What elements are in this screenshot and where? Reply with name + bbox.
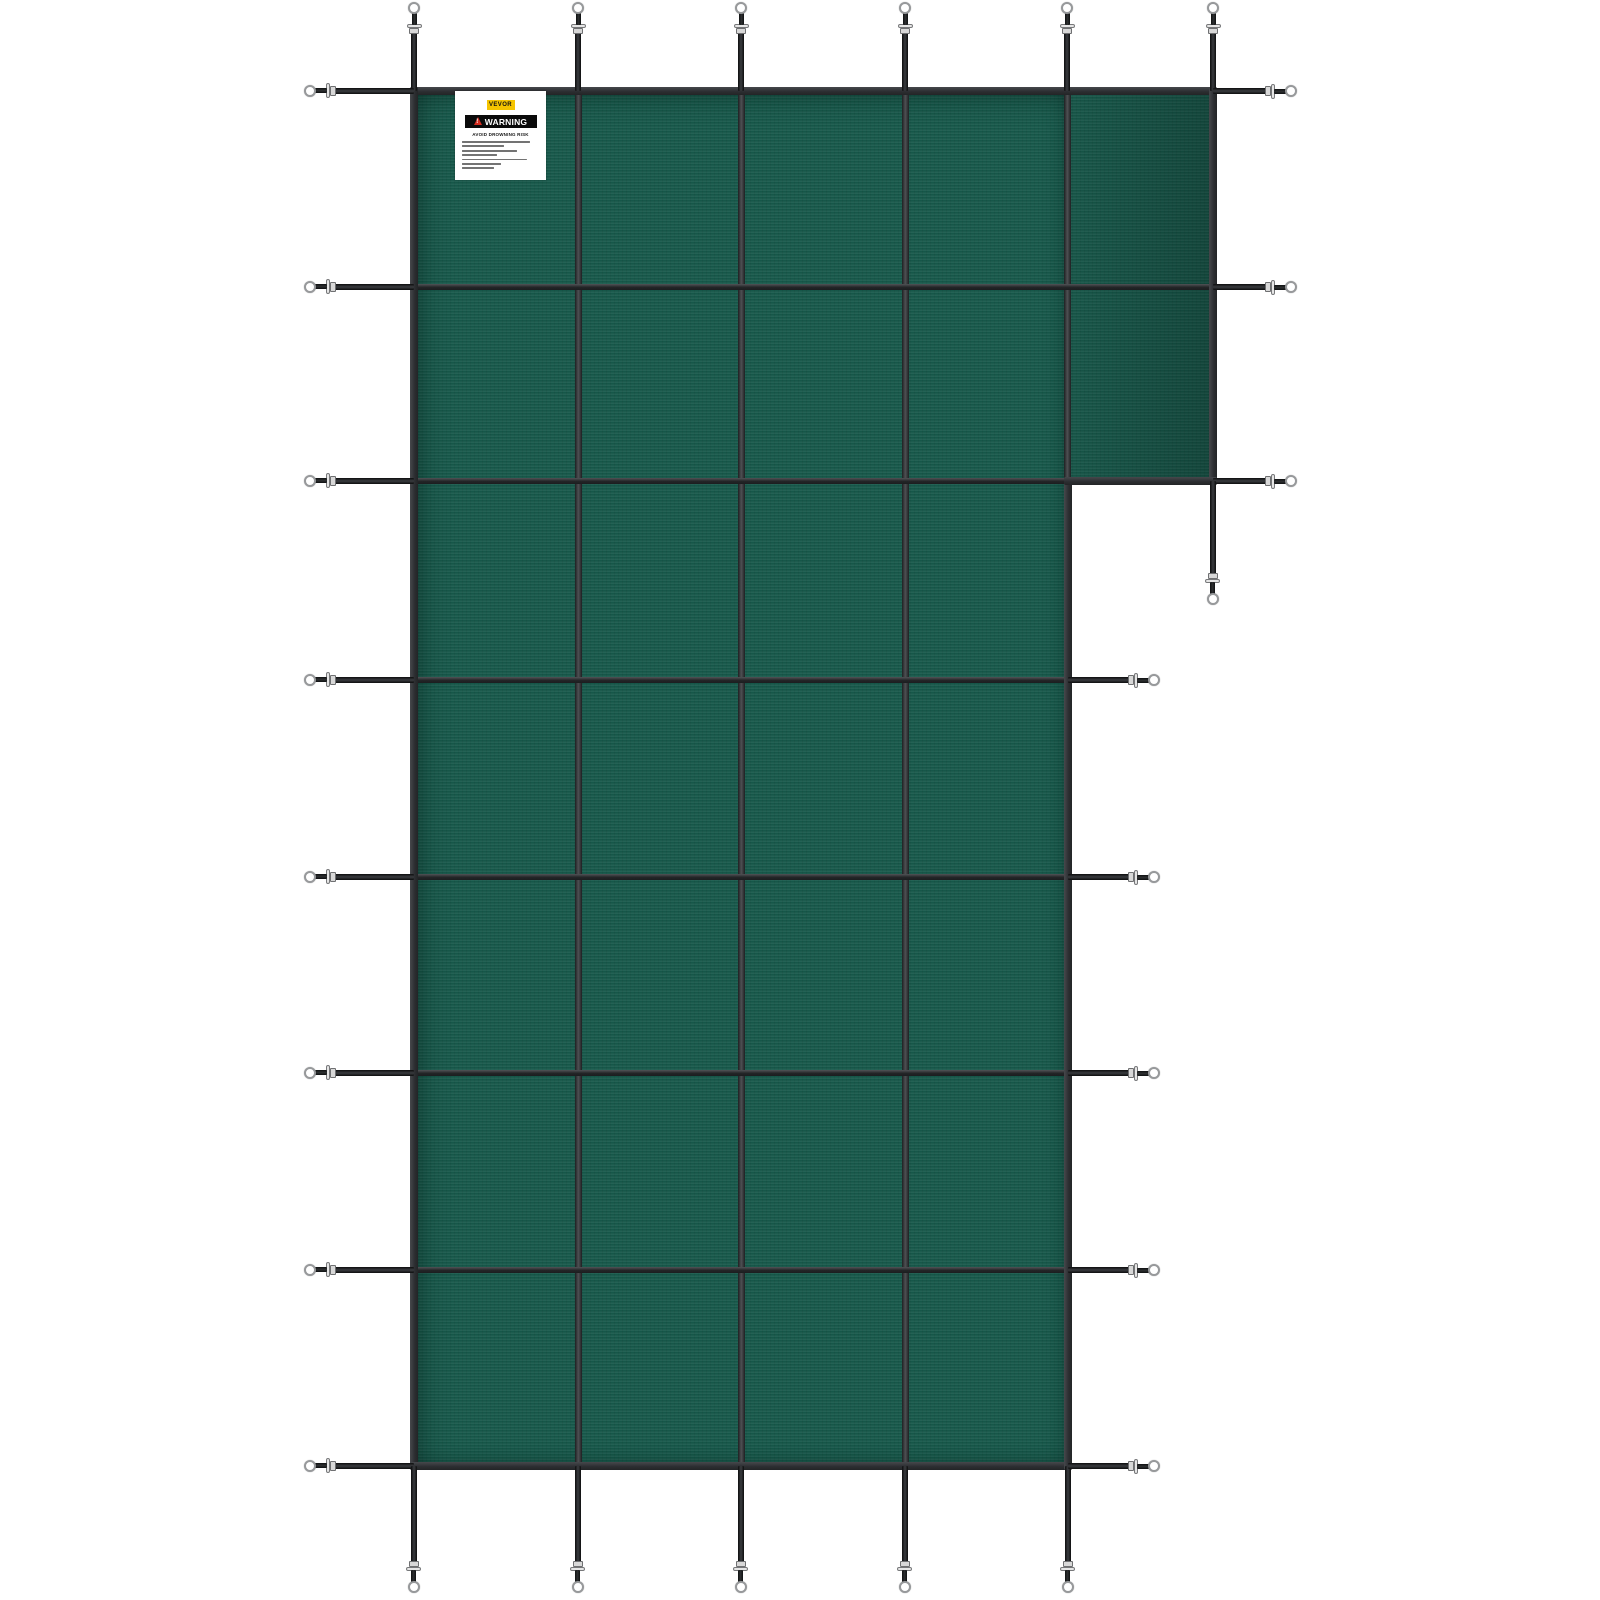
strap-webbing-tip — [1211, 13, 1216, 25]
strap-buckle — [573, 28, 583, 34]
strap-webbing-tip — [315, 285, 327, 290]
strap-webbing-tip — [576, 13, 581, 25]
strap-webbing-tip — [903, 13, 908, 25]
grid-strap-vertical — [575, 91, 582, 1466]
strap-webbing — [1213, 88, 1266, 94]
perimeter-strap — [1068, 1065, 1160, 1081]
strap-spring-ring — [305, 1067, 317, 1079]
strap-spring-ring — [305, 281, 317, 293]
perimeter-strap — [1213, 279, 1297, 295]
strap-spring-ring — [899, 1581, 911, 1593]
strap-buckle — [900, 28, 910, 34]
strap-buckle — [409, 28, 419, 34]
perimeter-strap — [1068, 1262, 1160, 1278]
strap-spring-ring — [305, 475, 317, 487]
strap-buckle — [330, 282, 336, 292]
strap-webbing — [1065, 1466, 1071, 1562]
strap-webbing — [1210, 481, 1216, 574]
warning-word: WARNING — [485, 117, 527, 127]
perimeter-strap — [897, 1466, 913, 1593]
strap-webbing — [1068, 677, 1129, 683]
perimeter-strap — [406, 2, 422, 91]
strap-spring-ring — [1148, 1264, 1160, 1276]
strap-webbing — [902, 33, 908, 91]
strap-webbing-tip — [315, 1071, 327, 1076]
perimeter-strap — [304, 83, 414, 99]
strap-spring-ring — [1148, 1460, 1160, 1472]
grid-strap-vertical — [738, 91, 745, 1466]
strap-spring-ring — [1148, 1067, 1160, 1079]
strap-buckle — [330, 86, 336, 96]
strap-buckle — [736, 28, 746, 34]
fine-print-line — [462, 167, 494, 169]
strap-buckle — [330, 1068, 336, 1078]
warning-headline: AVOID DROWNING RISK — [455, 132, 546, 137]
perimeter-strap — [1059, 2, 1075, 91]
strap-webbing-tip — [315, 1268, 327, 1273]
strap-spring-ring — [1207, 593, 1219, 605]
perimeter-strap — [570, 2, 586, 91]
perimeter-strap — [304, 672, 414, 688]
grid-strap-horizontal — [414, 1070, 1068, 1076]
perimeter-strap — [1068, 1458, 1160, 1474]
perimeter-strap — [304, 1065, 414, 1081]
strap-webbing — [738, 1466, 744, 1562]
strap-webbing — [335, 284, 414, 290]
strap-spring-ring — [735, 3, 747, 15]
strap-webbing — [411, 1466, 417, 1562]
warning-banner: WARNING — [465, 115, 537, 128]
strap-webbing — [902, 1466, 908, 1562]
strap-spring-ring — [572, 1581, 584, 1593]
fine-print-line — [462, 163, 501, 165]
fine-print-line — [462, 154, 497, 156]
perimeter-strap — [304, 473, 414, 489]
fine-print-line — [462, 150, 517, 152]
vevor-logo-badge: VEVOR — [487, 100, 515, 110]
strap-spring-ring — [572, 3, 584, 15]
strap-buckle — [1062, 28, 1072, 34]
perimeter-strap — [733, 1466, 749, 1593]
strap-buckle — [330, 675, 336, 685]
perimeter-strap — [1213, 83, 1297, 99]
strap-webbing — [335, 478, 414, 484]
warning-label: VEVOR WARNING AVOID DROWNING RISK — [455, 91, 546, 180]
warning-fine-print — [455, 141, 546, 169]
fine-print-line — [462, 141, 530, 143]
product-photo: VEVOR WARNING AVOID DROWNING RISK — [0, 0, 1600, 1600]
fine-print-line — [462, 145, 504, 147]
strap-webbing — [335, 874, 414, 880]
strap-webbing — [335, 1267, 414, 1273]
strap-webbing — [335, 1463, 414, 1469]
strap-webbing — [1064, 33, 1070, 91]
strap-webbing-tip — [315, 678, 327, 683]
strap-webbing — [1213, 284, 1266, 290]
grid-strap-horizontal — [414, 677, 1068, 683]
perimeter-strap — [733, 2, 749, 91]
strap-buckle — [1208, 28, 1218, 34]
strap-webbing — [738, 33, 744, 91]
strap-spring-ring — [899, 3, 911, 15]
strap-webbing — [335, 677, 414, 683]
strap-spring-ring — [408, 1581, 420, 1593]
perimeter-strap — [1205, 2, 1221, 91]
strap-webbing — [575, 1466, 581, 1562]
perimeter-strap — [1068, 869, 1160, 885]
strap-buckle — [330, 1265, 336, 1275]
strap-spring-ring — [1148, 871, 1160, 883]
strap-webbing-tip — [412, 13, 417, 25]
strap-spring-ring — [305, 871, 317, 883]
strap-buckle — [330, 476, 336, 486]
strap-buckle — [330, 1461, 336, 1471]
strap-spring-ring — [305, 1460, 317, 1472]
strap-spring-ring — [1207, 3, 1219, 15]
hazard-triangle-icon — [474, 117, 482, 125]
perimeter-strap — [570, 1466, 586, 1593]
strap-webbing — [1068, 1267, 1129, 1273]
strap-spring-ring — [1285, 475, 1297, 487]
strap-buckle — [330, 872, 336, 882]
grid-strap-horizontal — [414, 284, 1213, 290]
perimeter-strap — [304, 869, 414, 885]
strap-spring-ring — [408, 3, 420, 15]
grid-strap-horizontal — [414, 874, 1068, 880]
strap-spring-ring — [1285, 85, 1297, 97]
strap-spring-ring — [1148, 674, 1160, 686]
perimeter-strap — [406, 1466, 422, 1593]
strap-webbing — [1068, 1463, 1129, 1469]
strap-webbing — [335, 88, 414, 94]
strap-webbing-tip — [315, 89, 327, 94]
strap-spring-ring — [305, 85, 317, 97]
perimeter-strap — [1068, 672, 1160, 688]
strap-spring-ring — [735, 1581, 747, 1593]
strap-webbing-tip — [315, 1464, 327, 1469]
perimeter-strap — [1205, 481, 1221, 605]
strap-webbing-tip — [739, 13, 744, 25]
strap-spring-ring — [305, 674, 317, 686]
perimeter-strap — [304, 1458, 414, 1474]
perimeter-strap — [1060, 1466, 1076, 1593]
strap-spring-ring — [1061, 3, 1073, 15]
perimeter-strap — [897, 2, 913, 91]
grid-strap-vertical — [902, 91, 909, 1466]
edge-binding-right-main — [1064, 477, 1072, 1470]
fine-print-line — [462, 159, 527, 161]
perimeter-strap — [304, 1262, 414, 1278]
strap-webbing — [1068, 1070, 1129, 1076]
perimeter-strap — [1213, 473, 1297, 489]
strap-spring-ring — [305, 1264, 317, 1276]
strap-webbing-tip — [1065, 13, 1070, 25]
strap-spring-ring — [1285, 281, 1297, 293]
strap-spring-ring — [1062, 1581, 1074, 1593]
strap-webbing — [575, 33, 581, 91]
edge-binding-extension-bottom — [1064, 477, 1217, 485]
grid-strap-horizontal — [414, 1267, 1068, 1273]
perimeter-strap — [304, 279, 414, 295]
strap-webbing-tip — [315, 479, 327, 484]
strap-webbing — [335, 1070, 414, 1076]
strap-webbing — [1068, 874, 1129, 880]
strap-webbing-tip — [315, 875, 327, 880]
